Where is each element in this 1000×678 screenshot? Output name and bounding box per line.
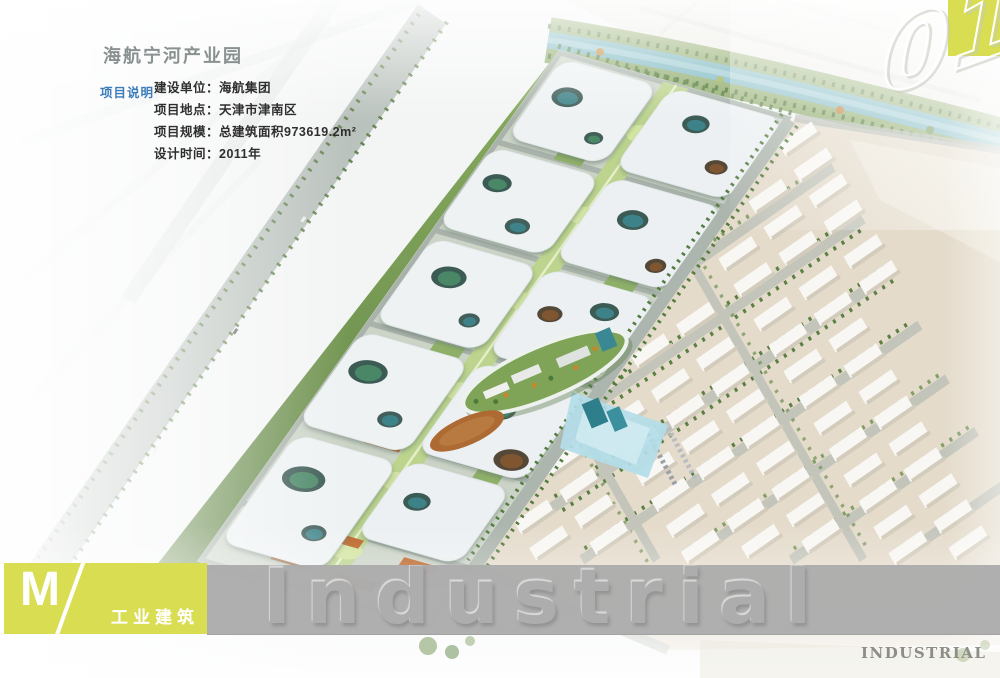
presentation-board: { "header": { "title": "海航宁河产业园", "secti… bbox=[0, 0, 1000, 678]
category-label: 工业建筑 bbox=[111, 603, 199, 628]
detail-scale: 项目规模：总建筑面积973619.2m² bbox=[154, 126, 356, 139]
category-logo-block: M 工业建筑 bbox=[4, 563, 207, 634]
logo-letter: M bbox=[20, 564, 60, 616]
watermark-bar: Industrial bbox=[207, 565, 1000, 635]
detail-location: 项目地点：天津市津南区 bbox=[154, 104, 356, 117]
watermark-text: Industrial bbox=[207, 565, 1000, 629]
detail-construction-unit: 建设单位：海航集团 bbox=[154, 82, 356, 95]
detail-design-year: 设计时间：2011年 bbox=[154, 148, 356, 161]
page-title: 海航宁河产业园 bbox=[103, 42, 243, 68]
section-label: 项目说明 bbox=[100, 82, 154, 101]
industrial-corner-label: INDUSTRIAL bbox=[861, 644, 986, 662]
project-details: 建设单位：海航集团 项目地点：天津市津南区 项目规模：总建筑面积973619.2… bbox=[154, 82, 356, 161]
